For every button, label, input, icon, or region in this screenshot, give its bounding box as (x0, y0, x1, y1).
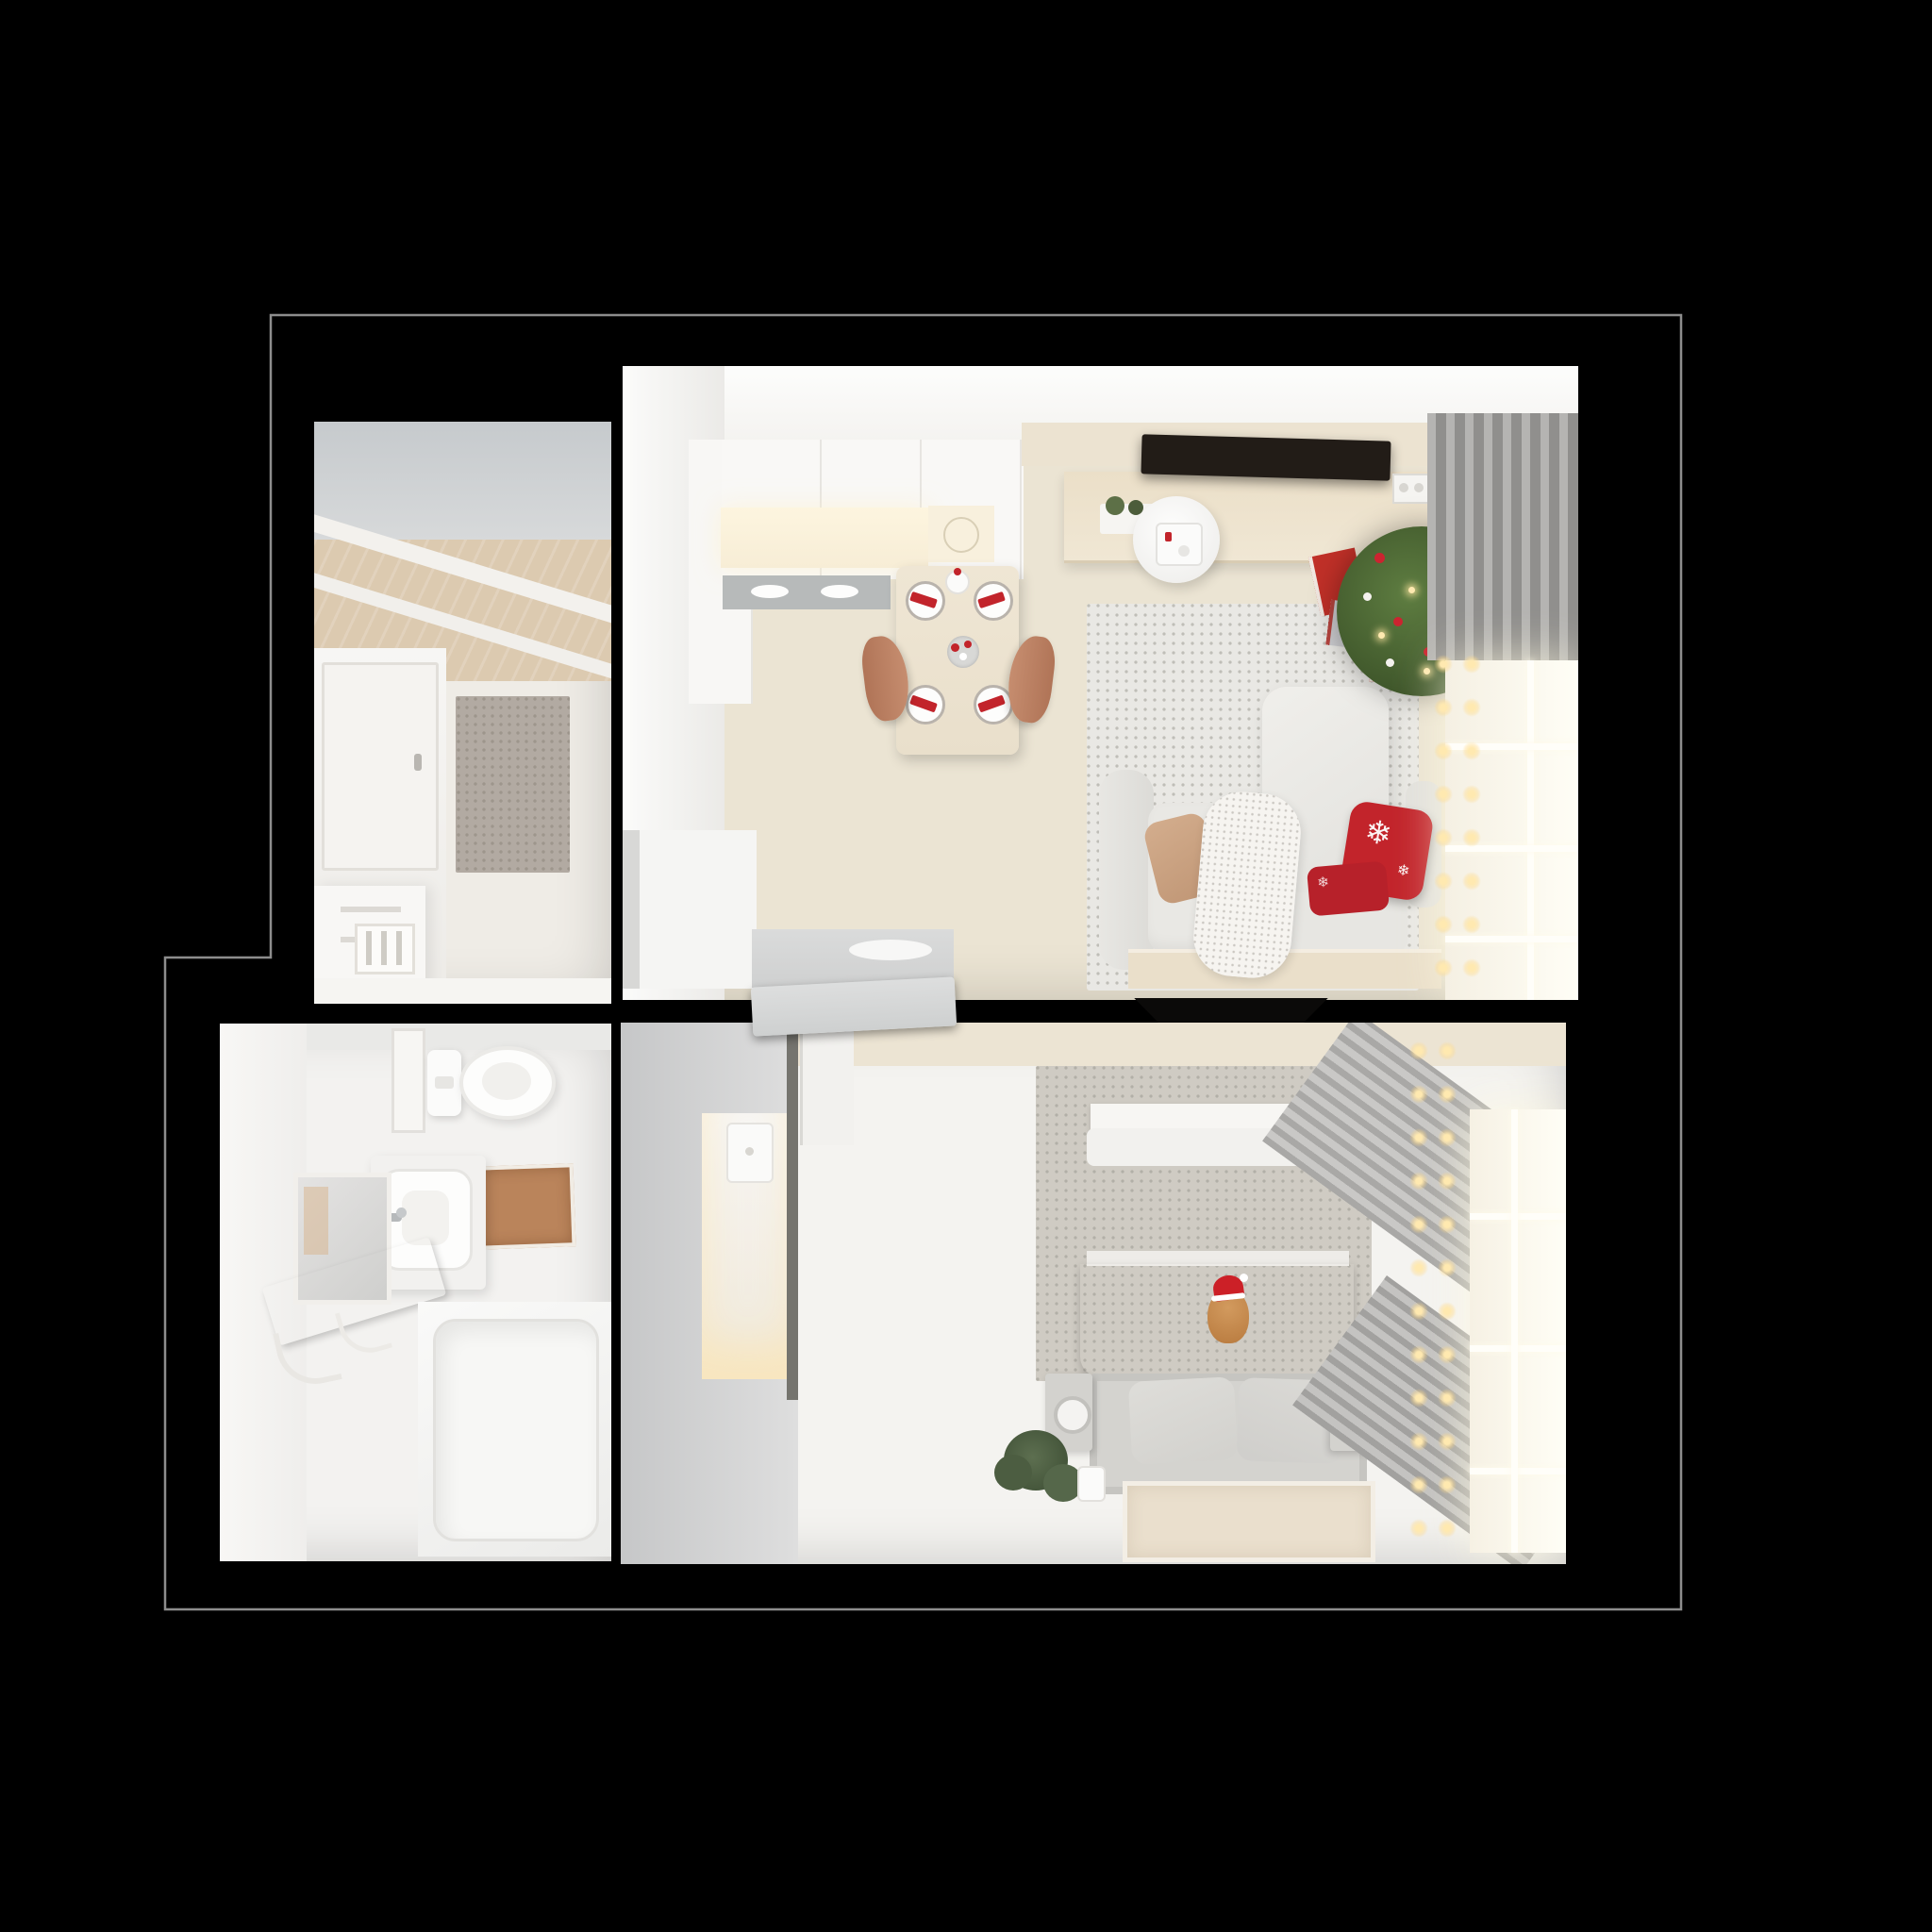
wardrobe (621, 1023, 798, 1564)
wardrobe-niche (702, 1113, 794, 1379)
red-napkin (977, 695, 1006, 713)
tree-light (1424, 668, 1430, 675)
living-curtains (1427, 413, 1578, 660)
faucet-knob (396, 1207, 407, 1218)
outlet-plate (1392, 474, 1432, 504)
place-setting (906, 581, 945, 621)
room-bedroom (621, 1023, 1566, 1564)
bath-mat-brown (475, 1163, 575, 1250)
place-setting (974, 581, 1013, 621)
cake-topper (954, 568, 961, 575)
lamp-dot (745, 1147, 754, 1156)
floor-plan-stage: ❄ ❄ ❄ (0, 0, 1932, 1932)
place-setting (906, 685, 945, 724)
string-lights (1430, 649, 1491, 1000)
side-table (1133, 496, 1220, 583)
ornament-dot (1363, 592, 1372, 601)
snowflake-icon: ❄ (1396, 862, 1411, 879)
bauble (959, 653, 967, 660)
string-lights (1406, 1036, 1466, 1553)
window-mullion (1511, 1109, 1518, 1553)
bauble (964, 641, 972, 648)
bench-pillow (1128, 1376, 1238, 1465)
snowflake-icon: ❄ (1317, 875, 1330, 891)
vent-panel (355, 924, 415, 974)
kitchen-under-band (723, 575, 891, 609)
wall-shelf-panel (391, 1028, 425, 1133)
door-handle (414, 754, 422, 771)
white-dish (849, 940, 932, 960)
table-centerpiece (947, 636, 979, 668)
window-mullion (1470, 1345, 1566, 1352)
downlight (751, 585, 789, 598)
plant-foliage (994, 1455, 1032, 1491)
santa-hat-pom (1240, 1274, 1248, 1282)
toilet-tank (427, 1050, 461, 1116)
thermostat-device (1156, 523, 1203, 566)
niche-lamp (726, 1123, 774, 1183)
vent-bar (396, 931, 402, 965)
downlight (821, 585, 858, 598)
window-mullion (1470, 1213, 1566, 1220)
toilet-seat (482, 1062, 531, 1100)
dresser-handle (341, 907, 401, 912)
ornament-dot (1386, 658, 1394, 667)
device-red-dot (1165, 532, 1172, 541)
room-hallway (314, 422, 611, 1004)
wardrobe-door-panel (800, 1030, 854, 1145)
red-napkin (909, 695, 938, 713)
room-living: ❄ ❄ ❄ (623, 366, 1578, 1000)
hallway-north-wall (314, 422, 611, 540)
tree-light (1378, 632, 1385, 639)
bathtub (433, 1319, 599, 1541)
red-pillow-small: ❄ (1307, 860, 1390, 916)
cake-stand (945, 570, 970, 594)
window-mullion (1527, 660, 1534, 1000)
potted-plant (994, 1423, 1085, 1509)
bedroom-window (1470, 1109, 1566, 1553)
sofa-armrest-left (1099, 770, 1154, 970)
bauble (951, 643, 959, 652)
tree-light (1408, 587, 1415, 593)
wall-tv (1141, 434, 1391, 480)
peninsula-edge (623, 830, 640, 989)
ornament-dot (1393, 617, 1403, 626)
kitchen-counter-glow (721, 508, 928, 568)
toilet-bowl (459, 1046, 556, 1120)
hallway-gray-rug (456, 696, 570, 873)
hallway-south-wall (314, 978, 611, 1004)
mug (1077, 1466, 1106, 1502)
ornament-dot (1374, 553, 1385, 563)
cooktop-ring (943, 517, 979, 553)
bathtub-zone (418, 1302, 611, 1557)
socket-dot (1414, 483, 1424, 492)
knit-throw (1191, 789, 1305, 981)
socket-dot (1399, 483, 1408, 492)
plush-toy (1207, 1289, 1249, 1343)
kitchen-peninsula (623, 830, 757, 989)
room-bathroom (220, 1024, 611, 1561)
bedroom-wall-tv (1130, 998, 1332, 1023)
window-mullion (1470, 1468, 1566, 1474)
place-setting (974, 685, 1013, 724)
cooktop (928, 506, 994, 562)
mirror-reflection (304, 1187, 328, 1255)
plant-leaves (1106, 496, 1124, 515)
red-napkin (977, 591, 1006, 608)
red-napkin (909, 591, 938, 608)
vent-bar (366, 931, 372, 965)
flush-button (435, 1076, 454, 1089)
device-button (1178, 545, 1190, 557)
snowflake-icon: ❄ (1362, 815, 1393, 851)
wardrobe-seam (787, 1023, 798, 1400)
vent-bar (381, 931, 387, 965)
bedroom-beige-rug (1123, 1481, 1375, 1562)
